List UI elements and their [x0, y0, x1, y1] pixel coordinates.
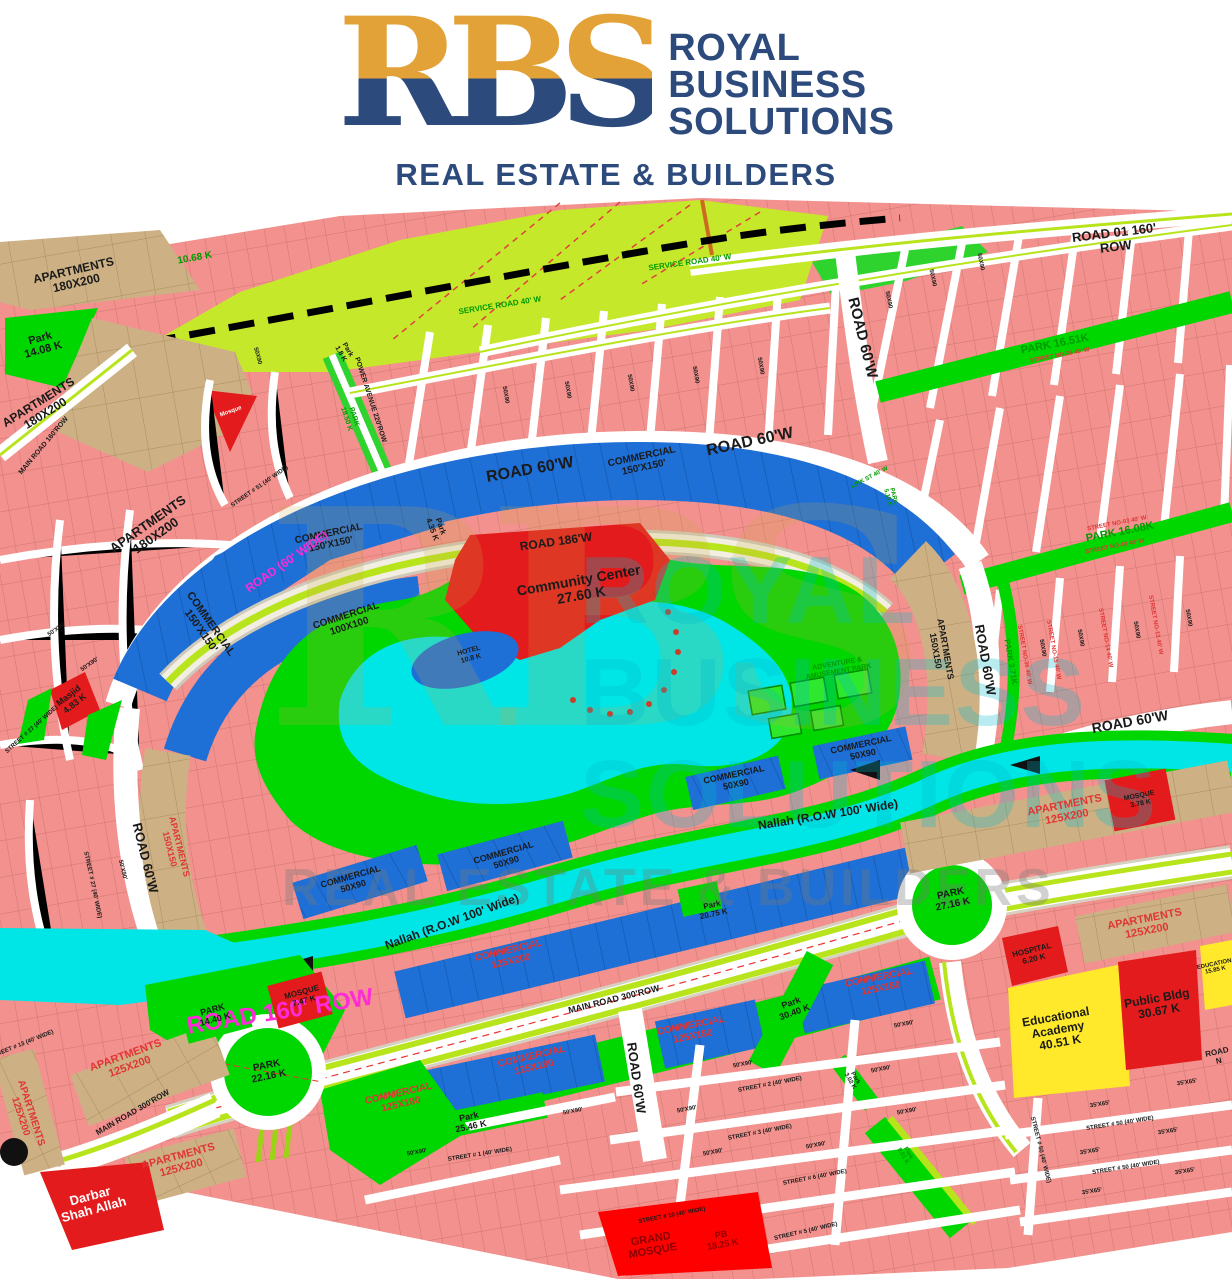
map-label: STREET # 27 (40' WIDE): [82, 851, 102, 919]
map-label: STREET NO-10 40' W: [1085, 538, 1145, 556]
map-label: Darbar Shah Allah: [56, 1181, 128, 1225]
map-label: 50X90: [755, 357, 764, 375]
map-label: MAIN ROAD 300'ROW: [95, 1088, 171, 1137]
map-label: ROAD 160' ROW: [185, 984, 375, 1039]
map-label: STREET # 1 (40' WIDE): [448, 1147, 513, 1164]
page: RBS ROYAL BUSINESS SOLUTIONS REAL ESTATE…: [0, 0, 1232, 1280]
map-label: LINK ST 40' W: [851, 466, 890, 491]
map-label: 50'X90': [805, 1141, 826, 1151]
map-label: 50'X90': [870, 1065, 891, 1075]
map-label: ROAD 60'W: [1091, 708, 1170, 736]
map-label: Park 4.35 K: [424, 514, 448, 542]
map-label: APARTMENTS 125X200: [88, 1038, 167, 1086]
map-label: PB 18.25 K: [705, 1228, 739, 1253]
map-label: 50X90: [625, 374, 634, 392]
map-label: APARTMENTS 125X200: [4, 1079, 46, 1151]
map-label: PARK 18.50 K: [339, 404, 361, 432]
map-label: APARTMENTS 180X200: [107, 493, 196, 567]
brand-line: ROYAL: [668, 30, 894, 67]
map-label: 50X90: [927, 269, 937, 287]
map-label: COMMERCIAL 125X200: [474, 939, 546, 976]
map-label: COMMERCIAL 125X180: [364, 1082, 436, 1119]
map-label: STREET # 51 (40' WIDE): [230, 465, 290, 509]
map-label: STREET # 3 (40' WIDE): [728, 1124, 793, 1143]
map-label: MOSQUE 7.47 K: [284, 984, 323, 1010]
map-label: APARTMENTS 180X200: [0, 375, 84, 441]
map-label: ROAD 60'W: [485, 454, 575, 486]
map-label: STREET NO-36 40' W: [1016, 625, 1033, 685]
map-label: COMMERCIAL 150'X150': [294, 522, 366, 557]
map-label: 50X90: [690, 366, 699, 384]
map-label: Park 14.08 K: [20, 329, 63, 362]
map-label: MOSQUE 3.78 K: [1123, 790, 1156, 811]
map-label: GRAND MOSQUE: [626, 1230, 678, 1262]
map-label: ROAD 60'W: [705, 424, 795, 459]
map-label: 50X90: [1075, 629, 1084, 647]
map-label: 35'X65': [1080, 1147, 1101, 1157]
map-label: 35'X65': [1158, 1127, 1179, 1137]
map-label: Mosque: [219, 405, 243, 419]
map-label: Park 1.8 K: [333, 341, 354, 363]
map-label: STREET # 27 (40' WIDE): [5, 705, 60, 755]
map-label: APARTMENTS 150X150: [157, 816, 191, 881]
map-label: HOTEL 10.8 K: [457, 645, 484, 666]
map-label: ROAD 60'W: [972, 623, 998, 696]
map-label: 50X90: [1131, 621, 1140, 639]
map-label: COMMERCIAL 50X90: [320, 864, 385, 900]
map-label: PARK 14.40 K: [196, 1002, 231, 1029]
map-label: 50X90: [1037, 639, 1046, 657]
map-label: MAIN ROAD 160'ROW: [18, 416, 71, 477]
map-label: SERVICE ROAD 40' W: [648, 253, 732, 273]
map-label: STREET # 50 (40' WIDE): [1086, 1115, 1154, 1132]
map-label: STREET # 5 (40' WIDE): [774, 1222, 839, 1243]
map-label: ROAD (60' WIDE): [243, 529, 330, 596]
logo-monogram: RBS: [338, 4, 653, 142]
map-label: STREET NO-13 40' W: [1147, 595, 1164, 655]
map-label: HOSPITAL 6.20 K: [1012, 942, 1055, 968]
map-label: Park 20.75 K: [697, 899, 728, 922]
map-label: ROAD 60'W: [130, 822, 161, 895]
map-label: APARTMENTS 150X150: [925, 618, 955, 682]
map-label: 50X90: [883, 291, 893, 309]
map-label: 50'X90': [47, 622, 67, 639]
map-label: STREET # 10 (40' WIDE): [638, 1206, 706, 1225]
map-label: COMMERCIAL 125X180: [497, 1045, 569, 1082]
map-label: 50X90: [975, 253, 985, 271]
brand-line: BUSINESS: [668, 67, 894, 104]
map-label: APARTMENTS 125X200: [140, 1142, 219, 1185]
map-label: SERVICE ROAD 40' W: [458, 295, 542, 317]
map-label: Public Bldg 30.67 K: [1123, 987, 1192, 1024]
map-label: POWER AVENUE 220'ROW: [353, 356, 388, 443]
map-label: COMMERCIAL 50X90: [830, 734, 895, 766]
logo: RBS ROYAL BUSINESS SOLUTIONS: [0, 4, 1232, 142]
map-label: PARK 5.15 K: [881, 487, 898, 507]
map-label: Educational Academy 40.51 K: [1021, 1005, 1095, 1055]
map-label: STREET NO-14 40' W: [1097, 608, 1114, 668]
map-label: 50X90: [252, 347, 263, 365]
map-label: 10.68 K: [177, 251, 213, 268]
map-label: COMMERCIAL 50X90: [473, 840, 538, 876]
map-label: Nallah (R.O.W 100' Wide): [757, 798, 899, 833]
map-label: Park 3.02 K: [842, 1069, 862, 1091]
map-label: 50'X90': [896, 1107, 917, 1117]
map-label: ROAD N: [1205, 1046, 1232, 1068]
map-label: COMMERCIAL 100X100: [312, 601, 384, 643]
map-label: 50X90: [1183, 609, 1192, 627]
logo-tagline: REAL ESTATE & BUILDERS: [0, 157, 1232, 193]
map-label: STREET # 2 (40' WIDE): [738, 1076, 803, 1095]
map-label: EDUCATION 15.85 K: [1196, 958, 1232, 978]
map-label: 50'X90': [893, 1020, 914, 1030]
map-label: PARK 27.16 K: [933, 886, 972, 914]
map-label: STREET # 13 (40' WIDE): [0, 1029, 55, 1061]
map-label: Community Center 27.60 K: [516, 562, 645, 614]
map-label: 50'X90': [732, 1060, 753, 1070]
map-label: 50'X90': [406, 1148, 427, 1158]
brand-line: SOLUTIONS: [668, 104, 894, 141]
map-label: 35'X65': [1177, 1078, 1198, 1088]
map-label: STREET NO-03 40' W: [1087, 515, 1147, 533]
map-label: COMMERCIAL 150'X150': [607, 445, 679, 480]
map-label: STREET NO-26 40' W: [1030, 347, 1090, 365]
map-label: 50'X90': [702, 1148, 723, 1158]
map-label: COMMERCIAL 125X180: [656, 1015, 728, 1049]
map-label: 35'X65': [1082, 1187, 1103, 1197]
map-label: 50'X90': [676, 1105, 697, 1115]
map-label: 50'X90': [80, 657, 100, 674]
map-label: PARK 16.08K: [1085, 521, 1155, 546]
map-label: ROAD 186'W: [519, 531, 593, 554]
map-label: 35'X65': [1090, 1100, 1111, 1110]
map-label: ROAD 60'W: [844, 296, 880, 380]
map-label: ROAD 01 160' ROW: [1055, 219, 1175, 261]
map-label: STREET NO-15 40' W: [1045, 620, 1062, 680]
map-label: STREET # 50 (40' WIDE): [1092, 1159, 1160, 1176]
map-label: STREET # 50 (40' WIDE): [1029, 1116, 1052, 1184]
map-label: ROAD 60'W: [624, 1042, 648, 1115]
map-label: 35'X65': [1175, 1167, 1196, 1177]
brand-name: ROYAL BUSINESS SOLUTIONS: [668, 4, 894, 141]
map-label: APARTMENTS 180X200: [32, 255, 118, 299]
map-label: 50X90: [562, 381, 571, 399]
map-label: COMMERCIAL 50X90: [703, 764, 768, 796]
map-label: COMMERCIAL 150'X150': [174, 590, 237, 666]
map-label: ADVENTURE & AMUSEMENT PARK: [804, 655, 872, 681]
map-label: STREET # 6 (40' WIDE): [783, 1169, 848, 1188]
map-label: Park 25.46 K: [453, 1109, 488, 1135]
map-label: PARK 3.71K: [1002, 639, 1018, 685]
map-label: Park 9.01 K: [895, 1144, 915, 1166]
map-label: COMMERCIAL 125X180: [844, 967, 916, 1001]
map-label: 50X90: [500, 386, 509, 404]
map-label: 50'X90': [116, 859, 127, 880]
map-label: 50'X90': [562, 1107, 583, 1117]
map-label: Masjid 4.83 K: [55, 684, 89, 717]
map-label: PARK 22.16 K: [249, 1058, 288, 1086]
map-label: APARTMENTS 125X200: [1107, 907, 1186, 945]
map-label: Park 30.40 K: [775, 993, 811, 1022]
map-label: APARTMENTS 125X200: [1027, 793, 1106, 831]
map-label: PARK 16.51K: [1020, 333, 1090, 358]
map-label: MAIN ROAD 300'ROW: [567, 984, 660, 1016]
map-label: Nallah (R.O.W 100' Wide): [383, 892, 520, 953]
